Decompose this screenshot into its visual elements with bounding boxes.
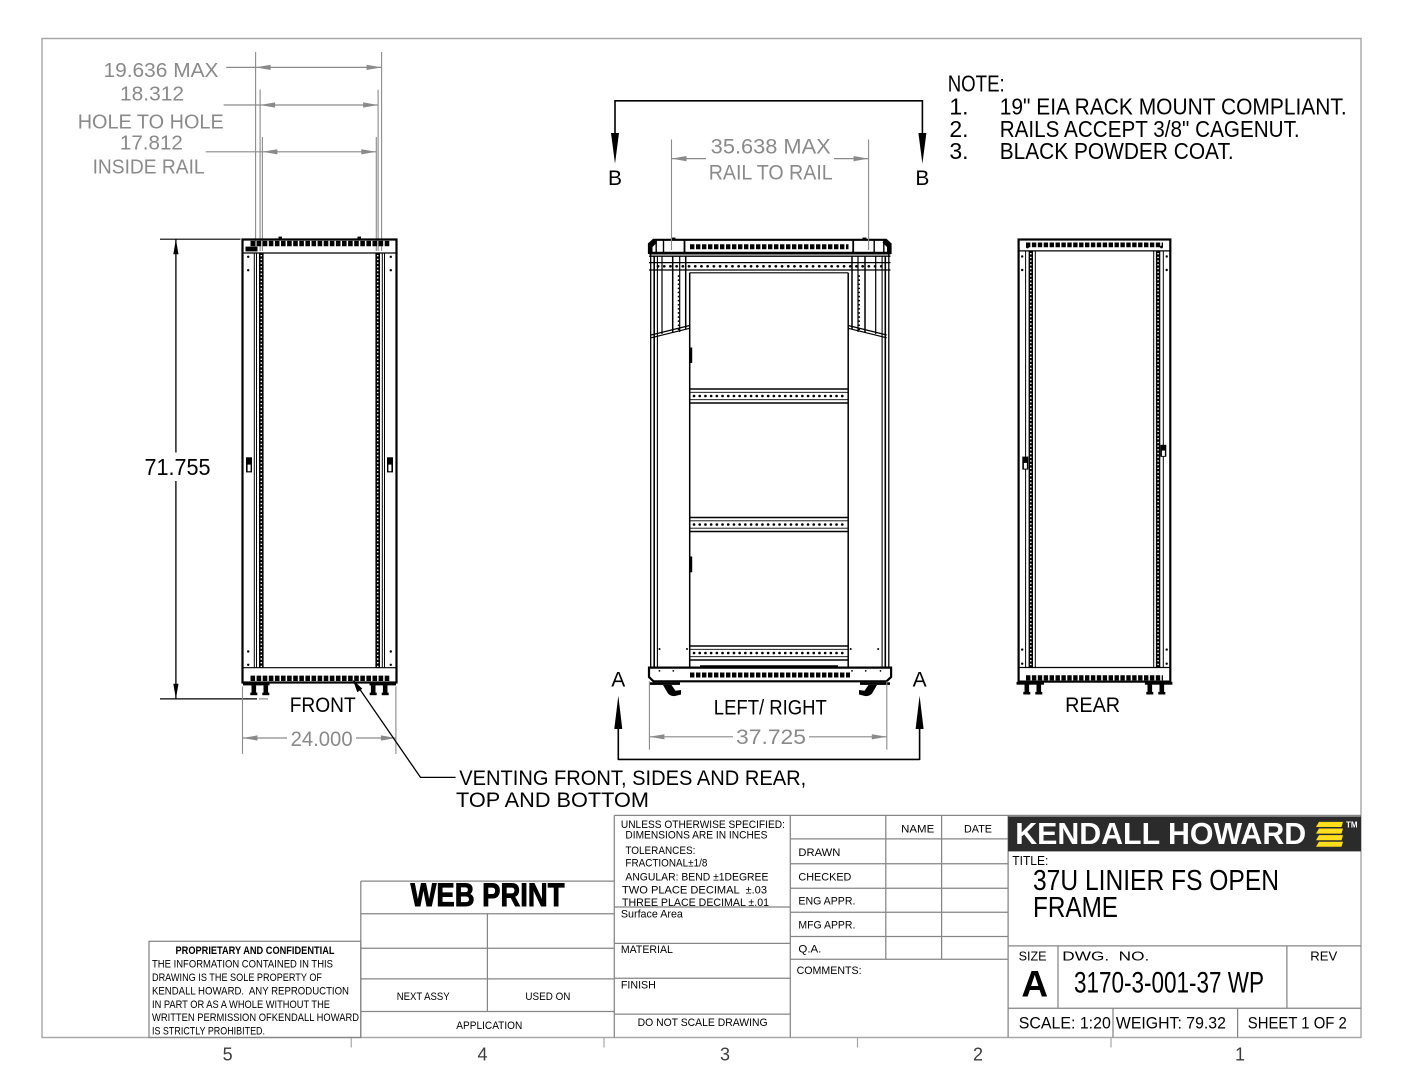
svg-text:4: 4 xyxy=(477,1045,487,1065)
svg-text:17.812: 17.812 xyxy=(120,133,183,155)
svg-text:FRONT: FRONT xyxy=(290,694,356,717)
svg-text:DRAWING IS THE SOLE PROPERTY O: DRAWING IS THE SOLE PROPERTY OF xyxy=(152,972,322,984)
svg-text:TOLERANCES:: TOLERANCES: xyxy=(625,845,695,857)
svg-text:18.312: 18.312 xyxy=(120,83,184,105)
svg-text:DO NOT SCALE DRAWING: DO NOT SCALE DRAWING xyxy=(638,1017,768,1029)
svg-text:TM: TM xyxy=(1346,821,1358,830)
svg-text:DIMENSIONS ARE IN INCHES: DIMENSIONS ARE IN INCHES xyxy=(625,829,767,841)
svg-text:SIZE: SIZE xyxy=(1019,950,1047,964)
svg-text:Q.A.: Q.A. xyxy=(798,944,821,956)
svg-text:2: 2 xyxy=(973,1045,983,1065)
svg-text:REV: REV xyxy=(1310,950,1338,964)
svg-text:WRITTEN PERMISSION OFKENDALL H: WRITTEN PERMISSION OFKENDALL HOWARD xyxy=(152,1012,359,1024)
svg-text:SHEET 1 OF 2: SHEET 1 OF 2 xyxy=(1248,1015,1347,1033)
svg-text:FINISH: FINISH xyxy=(621,980,656,992)
svg-text:TOP AND BOTTOM: TOP AND BOTTOM xyxy=(456,789,649,812)
svg-text:RAIL TO RAIL: RAIL TO RAIL xyxy=(709,162,833,185)
svg-text:SCALE: 1:20: SCALE: 1:20 xyxy=(1019,1015,1111,1033)
svg-text:35.638 MAX: 35.638 MAX xyxy=(711,135,831,158)
svg-text:TWO PLACE DECIMAL ±.03: TWO PLACE DECIMAL ±.03 xyxy=(622,885,767,897)
svg-text:FRAME: FRAME xyxy=(1033,892,1118,924)
svg-text:CHECKED: CHECKED xyxy=(798,872,851,884)
svg-text:24.000: 24.000 xyxy=(291,728,353,751)
svg-text:B: B xyxy=(608,167,622,190)
svg-text:71.755: 71.755 xyxy=(145,454,211,480)
svg-text:ENG APPR.: ENG APPR. xyxy=(798,896,855,908)
svg-text:BLACK POWDER COAT.: BLACK POWDER COAT. xyxy=(1000,138,1234,164)
svg-text:KENDALL HOWARD: KENDALL HOWARD xyxy=(1015,816,1306,851)
svg-text:A: A xyxy=(611,668,625,691)
svg-text:3.: 3. xyxy=(949,138,968,164)
svg-text:VENTING FRONT, SIDES AND REAR,: VENTING FRONT, SIDES AND REAR, xyxy=(459,767,806,790)
svg-text:DRAWN: DRAWN xyxy=(798,847,840,859)
svg-text:LEFT/ RIGHT: LEFT/ RIGHT xyxy=(714,697,827,720)
svg-text:1: 1 xyxy=(1235,1045,1245,1065)
svg-text:NAME: NAME xyxy=(901,823,934,835)
svg-text:DATE: DATE xyxy=(964,823,992,835)
svg-text:3170-3-001-37 WP: 3170-3-001-37 WP xyxy=(1074,966,1264,999)
svg-text:19.636 MAX: 19.636 MAX xyxy=(104,60,219,82)
svg-text:INSIDE RAIL: INSIDE RAIL xyxy=(93,156,205,178)
svg-text:IS STRICTLY PROHIBITED.: IS STRICTLY PROHIBITED. xyxy=(152,1026,265,1038)
svg-text:37.725: 37.725 xyxy=(736,726,806,749)
svg-text:FRACTIONAL±1/8: FRACTIONAL±1/8 xyxy=(625,858,707,870)
svg-text:THE INFORMATION CONTAINED IN T: THE INFORMATION CONTAINED IN THIS xyxy=(152,959,333,971)
svg-text:PROPRIETARY AND CONFIDENTIAL: PROPRIETARY AND CONFIDENTIAL xyxy=(176,945,335,957)
svg-text:A: A xyxy=(913,668,927,691)
svg-text:ANGULAR: BEND ±1DEGREE: ANGULAR: BEND ±1DEGREE xyxy=(625,872,768,884)
svg-text:THREE PLACE DECIMAL ±.01: THREE PLACE DECIMAL ±.01 xyxy=(622,897,769,909)
svg-text:MFG APPR.: MFG APPR. xyxy=(798,920,855,932)
svg-text:3: 3 xyxy=(720,1045,730,1065)
svg-text:B: B xyxy=(915,167,929,190)
svg-text:WEIGHT: 79.32: WEIGHT: 79.32 xyxy=(1116,1015,1226,1033)
svg-text:REAR: REAR xyxy=(1065,694,1120,717)
svg-text:WEB PRINT: WEB PRINT xyxy=(411,877,565,913)
svg-text:Surface Area: Surface Area xyxy=(621,908,684,920)
svg-text:NEXT ASSY: NEXT ASSY xyxy=(397,991,451,1003)
svg-text:COMMENTS:: COMMENTS: xyxy=(797,965,862,977)
svg-text:5: 5 xyxy=(223,1045,233,1065)
svg-text:DWG. NO.: DWG. NO. xyxy=(1062,950,1149,964)
svg-text:MATERIAL: MATERIAL xyxy=(621,944,673,956)
svg-text:APPLICATION: APPLICATION xyxy=(456,1020,522,1032)
svg-text:KENDALL HOWARD. ANY REPRODUCT: KENDALL HOWARD. ANY REPRODUCTION xyxy=(152,985,349,997)
svg-text:HOLE TO HOLE: HOLE TO HOLE xyxy=(78,112,224,134)
svg-text:IN PART OR AS A WHOLE WITHOUT: IN PART OR AS A WHOLE WITHOUT THE xyxy=(152,999,330,1011)
svg-text:A: A xyxy=(1021,964,1048,1005)
svg-text:USED ON: USED ON xyxy=(525,991,570,1003)
